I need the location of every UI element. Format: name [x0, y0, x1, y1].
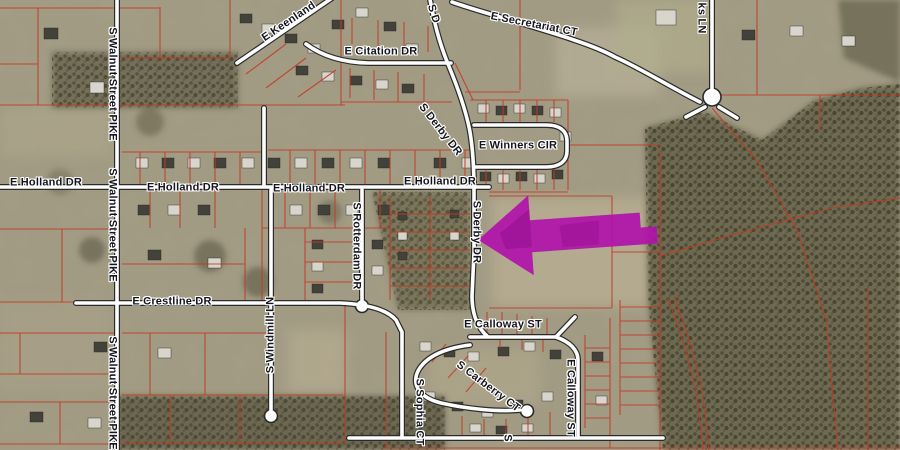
street-label-winners: E Winners CIR	[479, 141, 557, 152]
street-label-windmill: S Windmill LN	[266, 297, 277, 373]
map-canvas[interactable]: S Walnut Street PIKE S Walnut Street PIK…	[0, 0, 900, 450]
street-label-crestline: E Crestline DR	[132, 297, 211, 308]
map-layers	[0, 0, 900, 450]
street-label-holland-3: E Holland DR	[273, 184, 345, 195]
street-label-citation: E Citation DR	[345, 47, 418, 58]
street-label-walnut-pike-2: S Walnut Street PIKE	[107, 168, 118, 282]
street-label-ks-ln: ks LN	[696, 3, 707, 34]
street-label-sophia: S Sophia CT	[414, 379, 425, 446]
street-label-derby-south: S Derby DR	[471, 201, 482, 264]
street-label-walnut-pike-1: S Walnut Street PIKE	[107, 27, 118, 141]
street-label-calloway-h: E Calloway ST	[464, 320, 542, 331]
street-label-holland-4: E Holland DR	[404, 177, 476, 188]
street-label-holland-2: E Holland DR	[147, 183, 219, 194]
street-label-calloway-v: E Calloway ST	[565, 359, 576, 437]
street-label-s-partial: S	[502, 434, 513, 442]
street-label-holland-1: E Holland DR	[10, 178, 82, 189]
street-label-rotterdam: S Rotterdam DR	[351, 202, 362, 289]
street-label-walnut-pike-3: S Walnut Street PIKE	[107, 336, 118, 450]
